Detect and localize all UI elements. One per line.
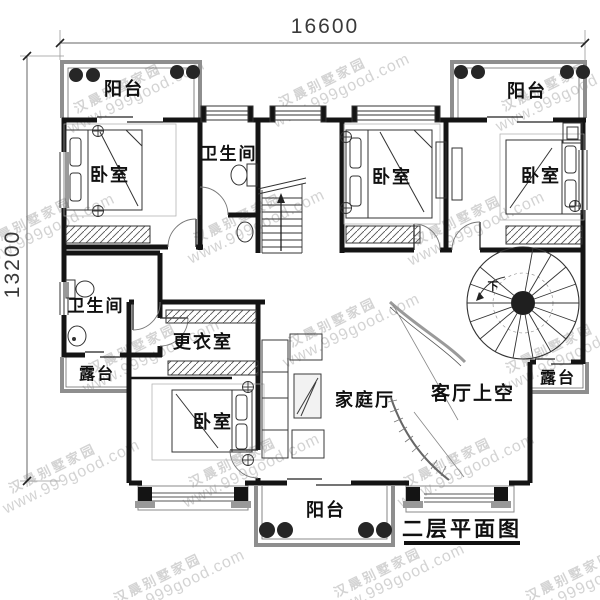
room-label-balcony-top-left: 阳台 [104, 75, 144, 101]
plan-title-underline [404, 541, 520, 545]
room-label-bedroom-top-middle: 卧室 [372, 163, 412, 189]
room-label-bedroom-bottom: 卧室 [193, 408, 233, 434]
wall-lamp-symbols [92, 125, 581, 466]
room-label-bedroom-top-left: 卧室 [90, 161, 130, 187]
room-label-terrace-right: 露台 [540, 364, 576, 388]
dimension-left-label: 13200 [1, 230, 25, 298]
railings [62, 62, 587, 545]
walls [62, 118, 586, 483]
spiral-staircase [467, 247, 579, 359]
room-label-bathroom-top: 卫生间 [201, 140, 258, 165]
room-label-bathroom-left: 卫生间 [68, 292, 125, 317]
room-label-bedroom-top-right: 卧室 [521, 162, 561, 188]
room-label-living-room-void: 客厅上空 [431, 379, 515, 406]
room-label-balcony-bottom: 阳台 [306, 496, 346, 522]
room-label-terrace-left: 露台 [79, 360, 115, 384]
dimension-top-label: 16600 [291, 15, 359, 39]
room-label-dressing-room: 更衣室 [173, 328, 233, 354]
bay-window-right [403, 486, 514, 512]
sink-top [237, 222, 253, 242]
plan-title: 二层平面图 [402, 513, 522, 543]
room-label-balcony-top-right: 阳台 [507, 77, 547, 103]
straight-staircase [258, 178, 306, 253]
floor-plan-page: 汉晨别墅家园www.999good.com汉晨别墅家园www.999good.c… [0, 0, 600, 600]
stair-down-label: 下 [488, 278, 499, 294]
bay-window-left [135, 486, 251, 510]
family-hall-furniture [262, 334, 324, 458]
sink-left [68, 326, 86, 346]
room-label-family-hall: 家庭厅 [335, 386, 395, 412]
